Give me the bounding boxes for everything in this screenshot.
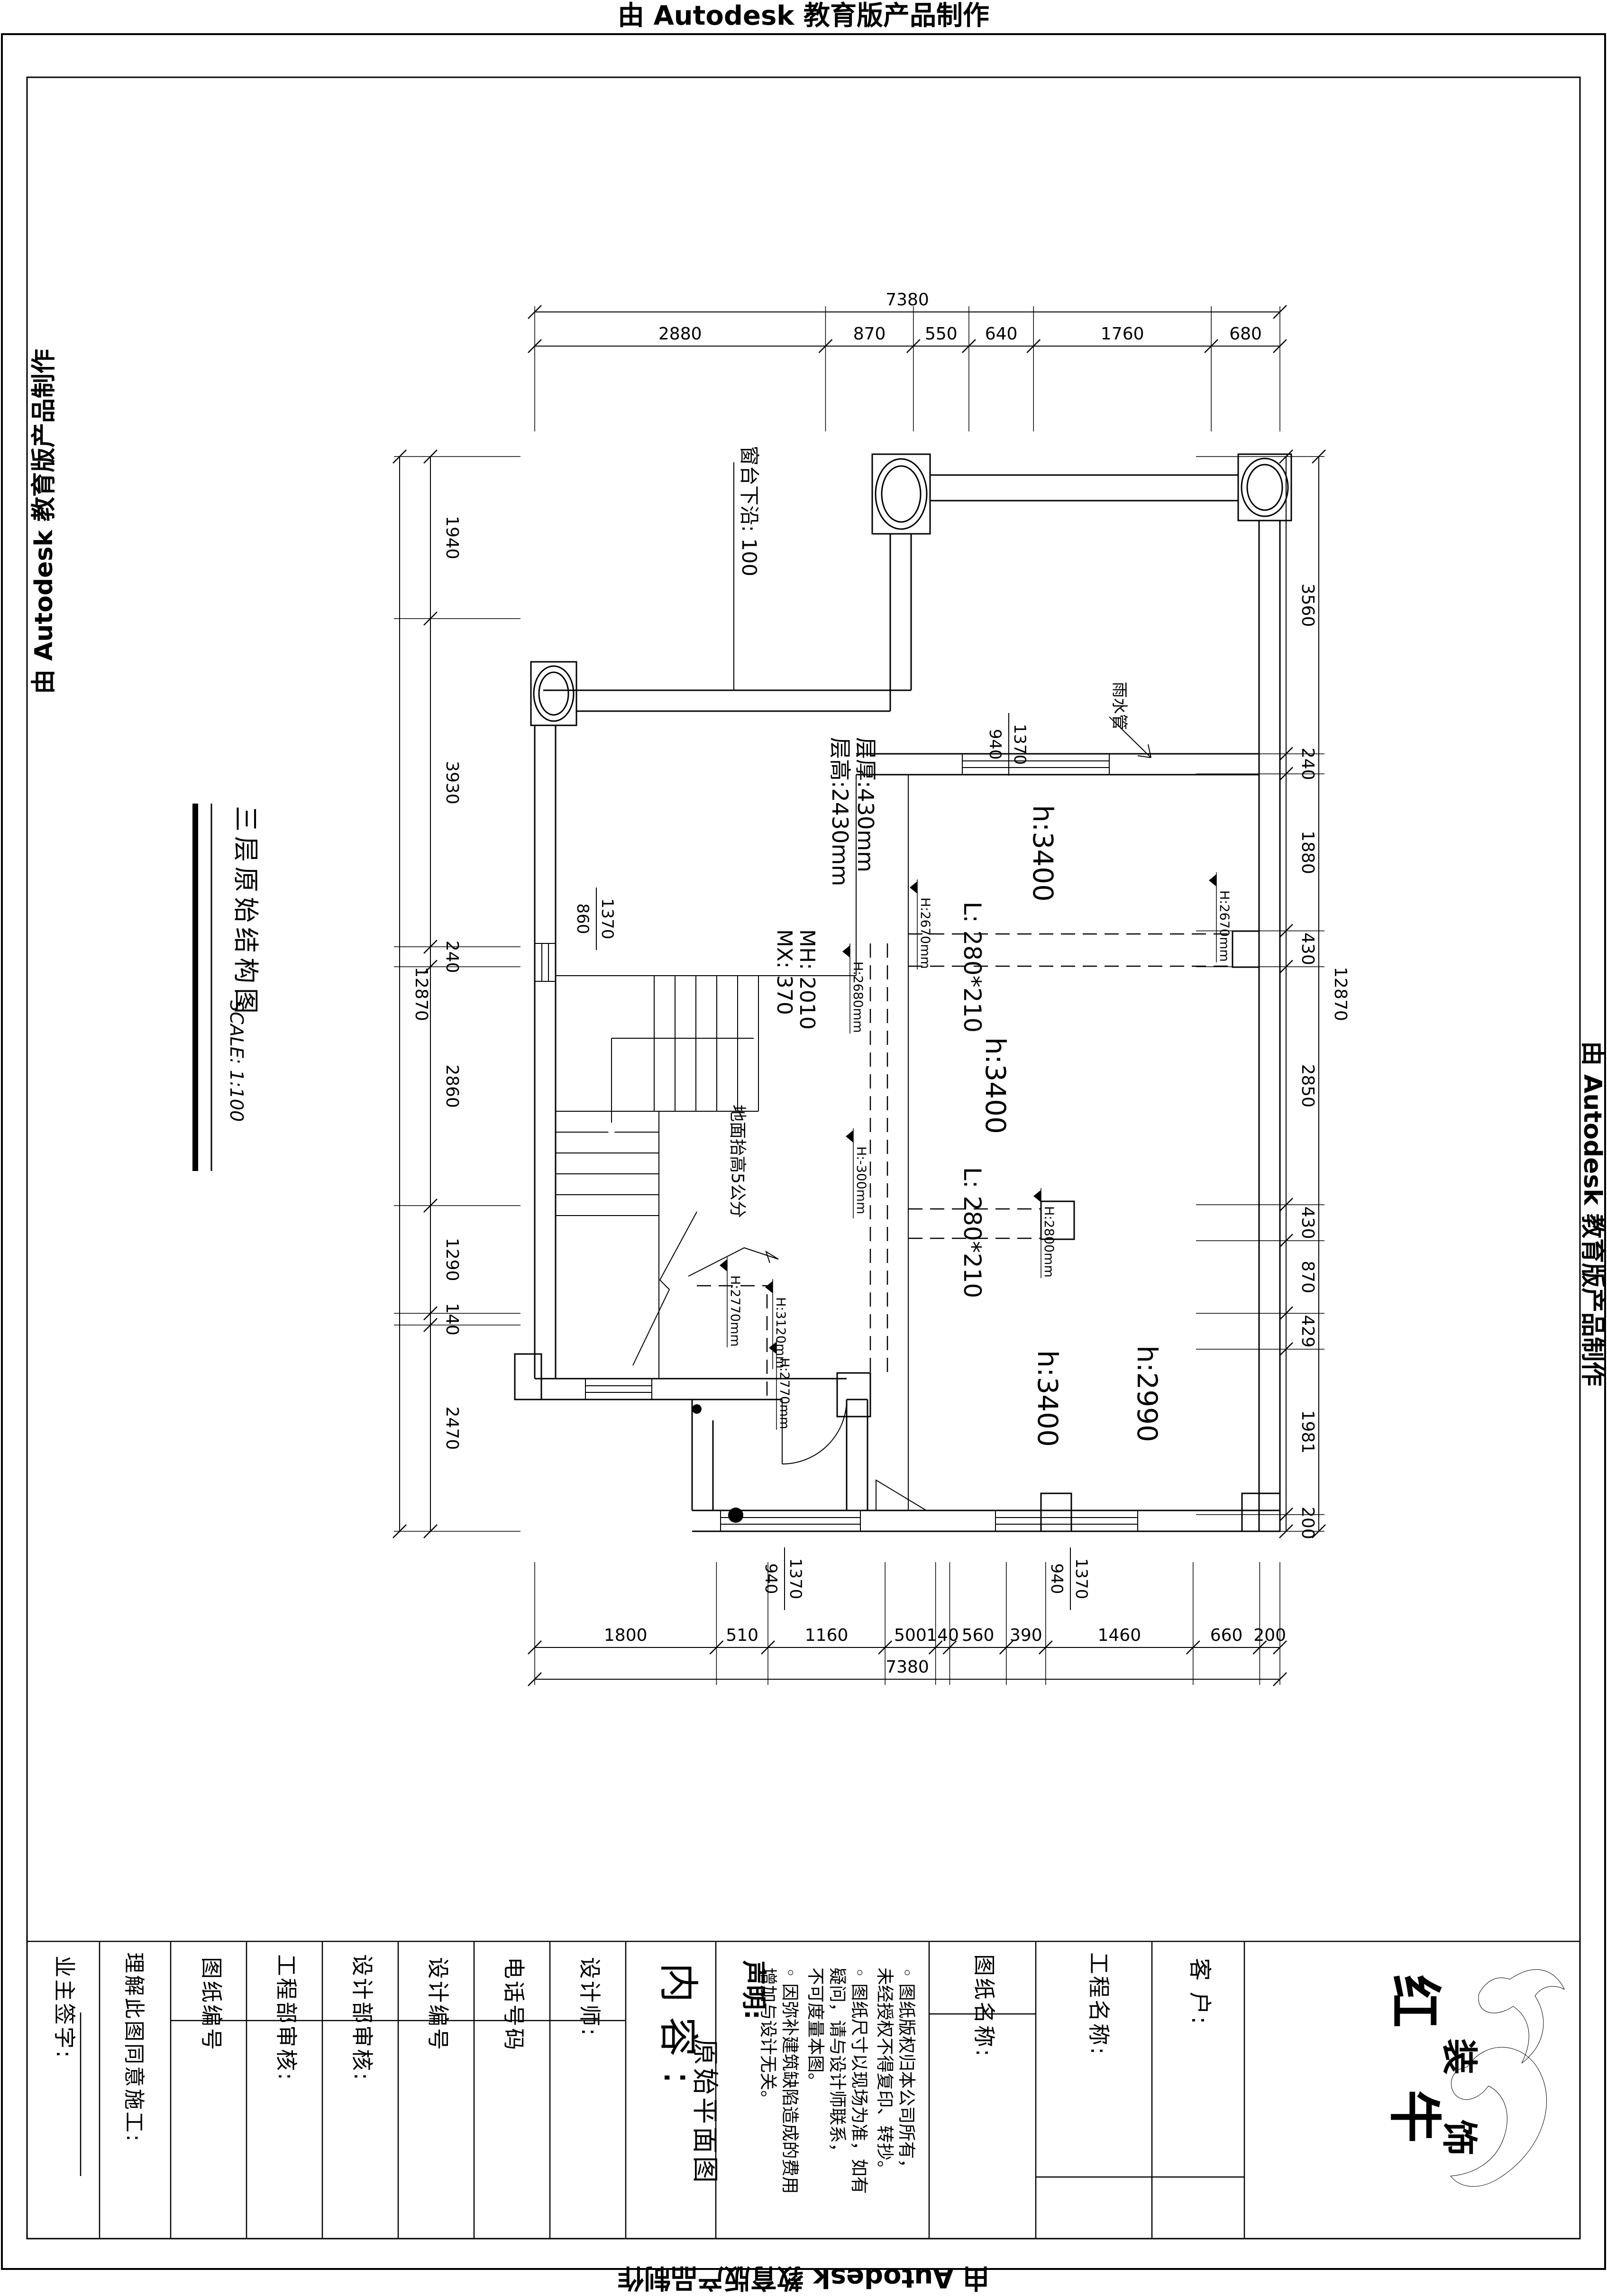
dim-segment-label: 1981 [1298,1410,1317,1454]
statement-line: 疑问，请与设计师联系， [827,1967,848,2160]
dim-segment-label: 430 [1298,933,1317,965]
design-audit-label: 设计部审核: [349,1954,375,2082]
dim-segment-label: 3930 [442,761,462,805]
dim-chain-top: 288087055064017606807380 [528,290,1287,431]
dim-chain-bottom: 1800510116050014056039014606602007380 [528,1562,1287,1686]
window-height: 940 [986,729,1004,760]
room-height-label: h:3400 [1027,805,1059,902]
dim-segment-label: 140 [926,1626,959,1645]
level-value: H:2800mm [1041,1206,1056,1278]
staircase [556,976,738,1365]
level-value: H:2670mm [1217,890,1232,962]
dim-total-label: 12870 [411,967,431,1021]
level-value: H:2770mm [728,1275,742,1347]
dim-segment-label: 140 [442,1303,462,1336]
level-value: H:2680mm [850,961,865,1033]
window-height: 940 [761,1564,780,1594]
design-no-label: 设计编号 [425,1957,451,2052]
eng-audit-label: 工程部审核: [274,1954,299,2082]
level-value: H:-300mm [854,1146,868,1214]
floorplan [515,454,1291,1531]
statement-line: ◦ 图纸版权归本公司所有， [896,1967,917,2177]
dim-segment-label: 390 [1010,1626,1042,1645]
concrete-columns [515,931,1280,1531]
dim-segment-label: 1940 [442,516,462,559]
room-height-label: h:3400 [979,1037,1012,1134]
door-mh-note: MH: 2010 [795,929,819,1030]
round-column [872,454,930,534]
level-marker: H:-300mm [846,1128,868,1218]
dim-segment-label: 429 [1298,1315,1317,1348]
drawing-title-block: 三层原始结构图 SCALE: 1:100 [195,804,261,1171]
level-value: H:2770mm [777,1358,792,1429]
dim-segment-label: 680 [1229,324,1262,344]
dim-segment-label: 870 [1298,1261,1317,1293]
plan-annotations: 窗台下沿: 100 雨水管 层厚:430mm 层高:2430mm MH: 201… [728,446,1129,1218]
dim-segment-label: 200 [1298,1507,1317,1539]
walls [535,475,1280,1531]
dim-segment-label: 2880 [658,324,702,344]
dim-chain-left: 1940393024028601290140247012870 [393,450,520,1538]
dim-segment-label: 500 [894,1626,927,1645]
dim-segment-label: 430 [1298,1207,1317,1239]
dim-chain-right: 356024018804302850430870429198120012870 [1196,450,1350,1539]
level-value: H:2670mm [918,897,932,969]
level-marker: H:2770mm [720,1257,742,1347]
statement-line: ◦ 图纸尺寸以现场为准，如有 [849,1967,869,2194]
agree-label: 理解此图同意施工: [122,1952,146,2143]
meter-symbol [728,1508,743,1523]
beam-size-label: L: 280*210 [959,1167,986,1298]
statement-line: ◦ 因弥补建筑缺陷造成的费用 [780,1967,800,2194]
drawing-name-label: 图纸名称: [971,1954,997,2058]
drawing-no-label: 图纸编号 [199,1957,224,2052]
dim-segment-label: 870 [853,324,886,344]
dim-segment-label: 240 [442,941,462,973]
window-width: 1370 [598,898,617,940]
window-width: 1370 [1010,724,1029,765]
drawing-title-scale: SCALE: 1:100 [226,1000,247,1122]
window-height: 860 [573,904,592,934]
stair-break-line [633,1212,697,1365]
dim-segment-label: 510 [726,1626,758,1645]
phone-label: 电话号码 [501,1957,527,2052]
window-width: 1370 [1072,1558,1091,1600]
dim-segment-label: 550 [925,324,958,344]
dim-segment-label: 2470 [442,1407,462,1450]
dim-segment-label: 200 [1253,1626,1286,1645]
room-height-label: h:2990 [1131,1345,1163,1442]
plot-stamp-right: 由 Autodesk 教育版产品制作 [1578,1041,1607,1386]
beam-size-label: L: 280*210 [959,902,986,1033]
door-mx-note: MX: 370 [772,929,796,1015]
dim-segment-label: 1460 [1098,1626,1141,1645]
dim-segment-label: 660 [1210,1626,1243,1645]
statement-line: 不可度量本图。 [805,1967,826,2090]
level-marker: H:2680mm [842,943,865,1034]
plot-stamp-bottom: 由 Autodesk 教育版产品制作 [618,2262,989,2293]
dim-segment-label: 240 [1298,748,1317,780]
dim-segment-label: 1760 [1101,324,1144,344]
sill-note: 窗台下沿: 100 [738,446,761,576]
window-height: 940 [1047,1564,1066,1594]
floor-raise-note: 地面抬高5公分 [728,1105,747,1218]
room-height-label: h:3400 [1032,1350,1064,1447]
round-column [531,662,576,725]
room-labels: h:3400h:3400h:3400h:2990L: 280*210L: 280… [959,805,1163,1447]
client-label: 客 户: [1187,1958,1213,2026]
window-size-label: 1370940 [1047,1547,1091,1610]
dim-segment-label: 3560 [1298,584,1317,627]
level-marker: H:2670mm [910,879,932,970]
brand-name: 红 牛 [1383,1975,1445,2165]
dim-total-label: 12870 [1331,967,1350,1021]
round-column [1238,454,1291,521]
dim-total-label: 7380 [886,1657,929,1677]
window-width: 1370 [786,1558,805,1600]
level-marker: H:2670mm [1209,872,1232,962]
border-frame [2,34,1605,2269]
window-size-label: 1370940 [986,713,1029,776]
project-name-label: 工程名称: [1086,1952,1112,2057]
statement-line: 未经授权不得复印、转抄。 [875,1967,895,2178]
slab-thickness-note: 层厚:430mm [853,737,878,872]
dim-segment-label: 1290 [442,1238,462,1281]
designer-label: 设计师: [577,1957,603,2038]
slab-height-note: 层高:2430mm [827,737,853,886]
title-block: 业主签字:理解此图同意施工:图纸编号工程部审核:设计部审核:设计编号电话号码设计… [27,1941,1580,2239]
bull-logo [1479,1969,1564,2063]
plot-stamp-left: 由 Autodesk 教育版产品制作 [30,349,58,694]
brand-logo: 红 牛 装 饰 [1383,1969,1564,2186]
drain-symbol [692,1404,702,1414]
dim-segment-label: 640 [985,324,1018,344]
drawing-title: 三层原始结构图 [231,806,261,1018]
dim-segment-label: 2850 [1298,1064,1317,1107]
owner-sign-label: 业主签字: [52,1956,77,2060]
dim-segment-label: 1160 [805,1626,849,1645]
stair-direction-arrow [605,1038,778,1276]
dim-segment-label: 1800 [604,1626,648,1645]
rain-pipe-note: 雨水管 [1110,682,1129,730]
content-value: 原始平面图 [689,2039,720,2186]
dim-total-label: 7380 [886,290,929,310]
dim-segment-label: 560 [962,1626,995,1645]
dim-segment-label: 2860 [442,1064,462,1108]
window-size-label: 1370860 [573,887,617,950]
statement-line: 增加与设计无关。 [758,1967,778,2108]
dim-segment-label: 1880 [1298,831,1317,874]
plot-stamp-top: 由 Autodesk 教育版产品制作 [618,0,989,31]
drawing-sheet: 由 Autodesk 教育版产品制作 由 Autodesk 教育版产品制作 由 … [0,0,1607,2296]
